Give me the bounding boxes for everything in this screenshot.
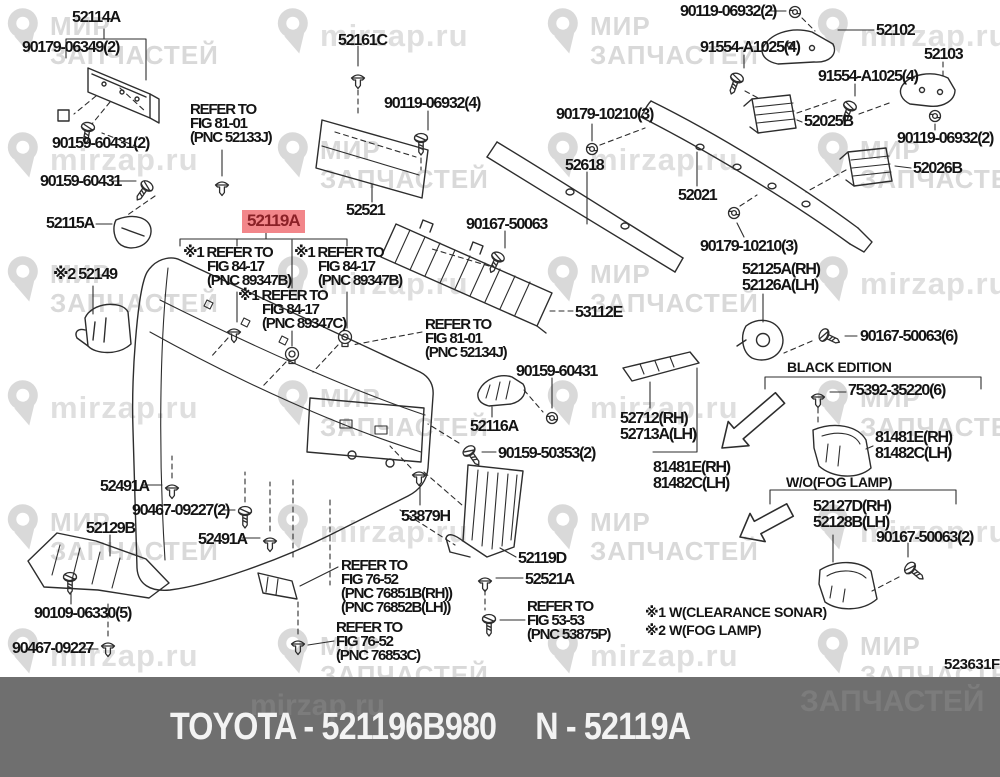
part-label-refer-89347B-right: ※1 REFER TOFIG 84-17(PNC 89347B) [294, 246, 402, 288]
part-label-refer-53875P: REFER TOFIG 53-53(PNC 53875P) [527, 600, 610, 642]
part-label-line: (PNC 89347B) [183, 274, 291, 288]
part-label-line: ※2 W(FOG LAMP) [645, 623, 761, 638]
part-label-line: 90159-60431 [40, 174, 121, 190]
banner-watermark: ЗАПЧАСТЕЙ [800, 685, 984, 719]
diagram-sheet-code: 523631F [944, 656, 1000, 673]
part-label-line: (PNC 53875P) [527, 628, 610, 642]
part-label-line: 75392-35220(6) [848, 383, 945, 399]
part-label-line: 52025B [804, 114, 853, 130]
part-label-91554-A1025-4b: 91554-A1025(4) [818, 69, 918, 85]
part-label-90159-60431-b: 90159-60431 [516, 364, 597, 380]
part-label-line: 90467-09227(2) [132, 503, 229, 519]
part-label-line: 53879H [401, 509, 450, 525]
part-label-line: 52119D [518, 551, 566, 567]
part-label-90159-50353-2: 90159-50353(2) [498, 446, 595, 462]
part-label-90167-50063-2: 90167-50063(2) [876, 530, 973, 546]
part-label-line: 52712(RH) [620, 411, 696, 427]
part-label-line: 52521A [525, 572, 574, 588]
part-label-53112E: 53112E [575, 305, 622, 321]
part-label-line: 52021 [678, 188, 717, 204]
part-label-52116A: 52116A [470, 419, 518, 435]
part-label-line: 91554-A1025(4) [700, 40, 800, 56]
part-label-line: 81482C(LH) [653, 476, 730, 492]
part-label-line: 52129B [86, 521, 135, 537]
part-label-line: (PNC 76852B(LH)) [341, 601, 452, 615]
part-label-line: 52125A(RH) [742, 262, 820, 278]
part-label-refer-89347C: ※1 REFER TOFIG 84-17(PNC 89347C) [238, 289, 346, 331]
part-label-line: 81481E(RH) [653, 460, 730, 476]
part-label-90179-10210-3a: 90179-10210(3) [556, 107, 653, 123]
part-label-90467-09227: 90467-09227 [12, 641, 93, 657]
part-label-refer-52133J: REFER TOFIG 81-01(PNC 52133J) [190, 103, 271, 145]
part-label-line: 52026B [913, 161, 962, 177]
part-label-90467-09227-2: 90467-09227(2) [132, 503, 229, 519]
part-label-90159-60431-2: 90159-60431(2) [52, 136, 149, 152]
part-label-52115A: 52115A [46, 216, 94, 232]
part-label-90179-06349-2: 90179-06349(2) [22, 40, 119, 56]
part-label-refer-76853C: REFER TOFIG 76-52(PNC 76853C) [336, 621, 420, 663]
part-label-52026B: 52026B [913, 161, 962, 177]
part-label-line: 90109-06330(5) [34, 606, 131, 622]
part-label-52025B: 52025B [804, 114, 853, 130]
part-label-line: 90179-10210(3) [556, 107, 653, 123]
part-label-line: 90179-06349(2) [22, 40, 119, 56]
part-label-line: 52115A [46, 216, 94, 232]
part-label-line: 52491A [198, 532, 247, 548]
part-label-wo-fog-lamp: W/O(FOG LAMP) [786, 475, 892, 490]
part-label-line: ※2 52149 [53, 267, 117, 283]
part-label-line: 52102 [876, 23, 915, 39]
part-label-52127D-52128B: 52127D(RH)52128B(LH) [813, 499, 891, 531]
part-label-line: (PNC 76853C) [336, 649, 420, 663]
part-label-line: 52618 [565, 158, 604, 174]
part-label-line: BLACK EDITION [787, 360, 891, 375]
part-label-note-clearance-sonar: ※1 W(CLEARANCE SONAR) [645, 605, 827, 620]
part-label-line: 90159-60431 [516, 364, 597, 380]
part-label-note-fog-lamp: ※2 W(FOG LAMP) [645, 623, 761, 638]
part-label-90119-06932-4: 90119-06932(4) [384, 96, 480, 112]
part-label-line: (PNC 89347B) [294, 274, 402, 288]
part-label-90179-10210-3b: 90179-10210(3) [700, 239, 797, 255]
part-label-52114A: 52114A [72, 10, 120, 26]
highlighted-part-number[interactable]: 52119A [242, 210, 305, 233]
part-label-line: 90167-50063(2) [876, 530, 973, 546]
part-label-90159-60431-a: 90159-60431 [40, 174, 121, 190]
part-labels-layer: 52114A90179-06349(2)90159-60431(2)90159-… [0, 0, 1000, 777]
part-label-line: 91554-A1025(4) [818, 69, 918, 85]
part-label-91554-A1025-4a: 91554-A1025(4) [700, 40, 800, 56]
part-label-52125A-52126A: 52125A(RH)52126A(LH) [742, 262, 820, 294]
part-label-line: 90167-50063(6) [860, 329, 957, 345]
banner-part-number: TOYOTA - 521196B980 [170, 706, 496, 749]
part-label-52618: 52618 [565, 158, 604, 174]
part-label-52712-52713A: 52712(RH)52713A(LH) [620, 411, 696, 443]
part-label-line: 90467-09227 [12, 641, 93, 657]
part-label-52102: 52102 [876, 23, 915, 39]
part-label-90167-50063-6: 90167-50063(6) [860, 329, 957, 345]
banner-pnc: N - 52119A [535, 706, 690, 749]
part-label-line: 90119-06932(2) [897, 131, 993, 147]
part-label-52521: 52521 [346, 203, 385, 219]
part-label-81481E-center: 81481E(RH)81482C(LH) [653, 460, 730, 492]
part-label-line: (PNC 89347C) [238, 317, 346, 331]
part-label-53879H: 53879H [401, 509, 450, 525]
part-label-52521A: 52521A [525, 572, 574, 588]
part-label-52129B: 52129B [86, 521, 135, 537]
part-label-line: 90159-50353(2) [498, 446, 595, 462]
part-label-line: 81481E(RH) [875, 430, 952, 446]
part-label-52161C: 52161C [338, 33, 387, 49]
part-label-line: 90119-06932(4) [384, 96, 480, 112]
bottom-banner: mirzap.ru ЗАПЧАСТЕЙ TOYOTA - 521196B980 … [0, 677, 1000, 777]
part-label-75392-35220-6: 75392-35220(6) [848, 383, 945, 399]
part-label-90167-50063-a: 90167-50063 [466, 217, 547, 233]
part-label-90109-06330-5: 90109-06330(5) [34, 606, 131, 622]
part-label-52491A-a: 52491A [100, 479, 149, 495]
part-label-line: ※1 W(CLEARANCE SONAR) [645, 605, 827, 620]
part-label-52021: 52021 [678, 188, 717, 204]
part-label-line: 52116A [470, 419, 518, 435]
part-label-90119-06932-2b: 90119-06932(2) [897, 131, 993, 147]
part-label-line: 52103 [924, 47, 963, 63]
part-label-line: 52161C [338, 33, 387, 49]
part-label-line: 90119-06932(2) [680, 4, 776, 20]
part-label-line: 90179-10210(3) [700, 239, 797, 255]
part-label-line: 53112E [575, 305, 622, 321]
part-label-81481E-right: 81481E(RH)81482C(LH) [875, 430, 952, 462]
part-label-line: (PNC 52133J) [190, 131, 271, 145]
part-label-line: 52114A [72, 10, 120, 26]
part-label-line: 52491A [100, 479, 149, 495]
part-label-line: 81482C(LH) [875, 446, 952, 462]
part-label-line: (PNC 52134J) [425, 346, 506, 360]
part-label-52491A-b: 52491A [198, 532, 247, 548]
part-label-refer-52134J: REFER TOFIG 81-01(PNC 52134J) [425, 318, 506, 360]
part-label-line: 90167-50063 [466, 217, 547, 233]
part-label-line: 52713A(LH) [620, 427, 696, 443]
part-label-line: 90159-60431(2) [52, 136, 149, 152]
part-label-52149: ※2 52149 [53, 267, 117, 283]
parts-diagram-page: МИР ЗАПЧАСТЕЙmirzap.ruМИР ЗАПЧАСТЕЙmirza… [0, 0, 1000, 777]
part-label-line: 52127D(RH) [813, 499, 891, 515]
part-label-line: 52521 [346, 203, 385, 219]
part-label-line: 52126A(LH) [742, 278, 820, 294]
part-label-refer-89347B-left: ※1 REFER TOFIG 84-17(PNC 89347B) [183, 246, 291, 288]
part-label-line: W/O(FOG LAMP) [786, 475, 892, 490]
part-label-refer-76851B: REFER TOFIG 76-52(PNC 76851B(RH))(PNC 76… [341, 559, 452, 615]
part-label-52103: 52103 [924, 47, 963, 63]
part-label-black-edition: BLACK EDITION [787, 360, 891, 375]
part-label-52119D: 52119D [518, 551, 566, 567]
part-label-90119-06932-2a: 90119-06932(2) [680, 4, 776, 20]
